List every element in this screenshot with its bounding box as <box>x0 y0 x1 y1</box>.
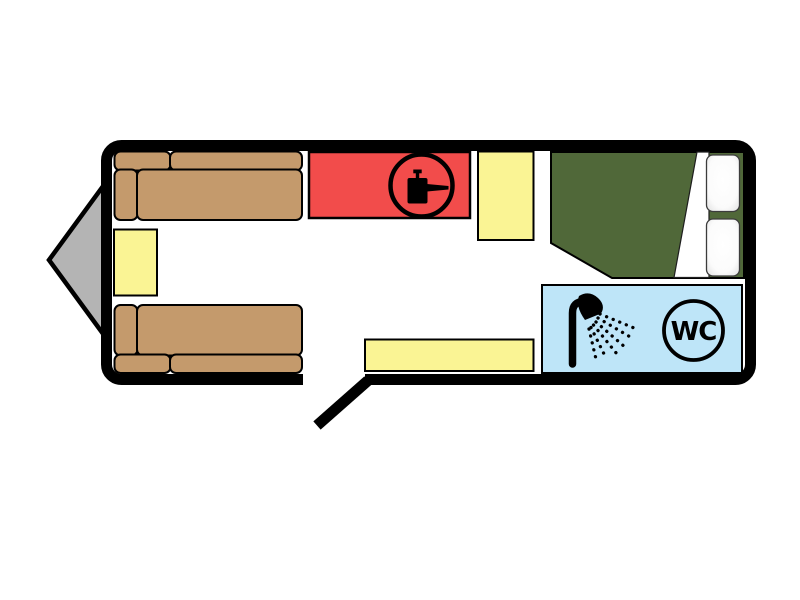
sofa-arm-cushion <box>115 170 138 221</box>
front-cabinet <box>114 230 157 296</box>
sofa-back-cushion <box>170 355 302 374</box>
sofa-bottom <box>115 305 303 373</box>
sofa-back-cushion <box>115 152 171 171</box>
sideboard <box>365 340 534 372</box>
wc-label: WC <box>671 317 717 347</box>
washroom: WC <box>542 285 742 373</box>
pillow <box>707 155 740 212</box>
sofa-seat <box>137 170 302 221</box>
caravan-floorplan: WC <box>0 0 800 600</box>
sofa-top <box>115 152 303 221</box>
wardrobe <box>478 152 534 241</box>
sofa-arm-cushion <box>115 305 138 356</box>
sofa-back-cushion <box>115 355 171 374</box>
pot-lid-stem <box>416 173 419 179</box>
floorplan-canvas: WC <box>0 0 800 600</box>
sofa-seat <box>137 305 302 356</box>
pot-lid-knob <box>413 170 421 174</box>
double-bed <box>551 152 744 278</box>
kitchen-unit <box>309 152 470 218</box>
sofa-back-cushion <box>170 152 302 171</box>
pillow <box>707 219 740 276</box>
pot-body <box>408 178 428 204</box>
